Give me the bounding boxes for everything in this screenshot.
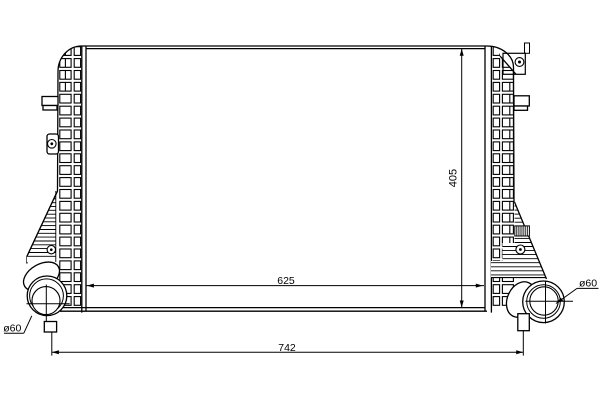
svg-text:ø60: ø60	[579, 278, 597, 290]
svg-text:625: 625	[277, 275, 295, 287]
svg-text:742: 742	[278, 342, 296, 354]
svg-text:ø60: ø60	[3, 322, 21, 334]
svg-text:405: 405	[448, 169, 460, 187]
